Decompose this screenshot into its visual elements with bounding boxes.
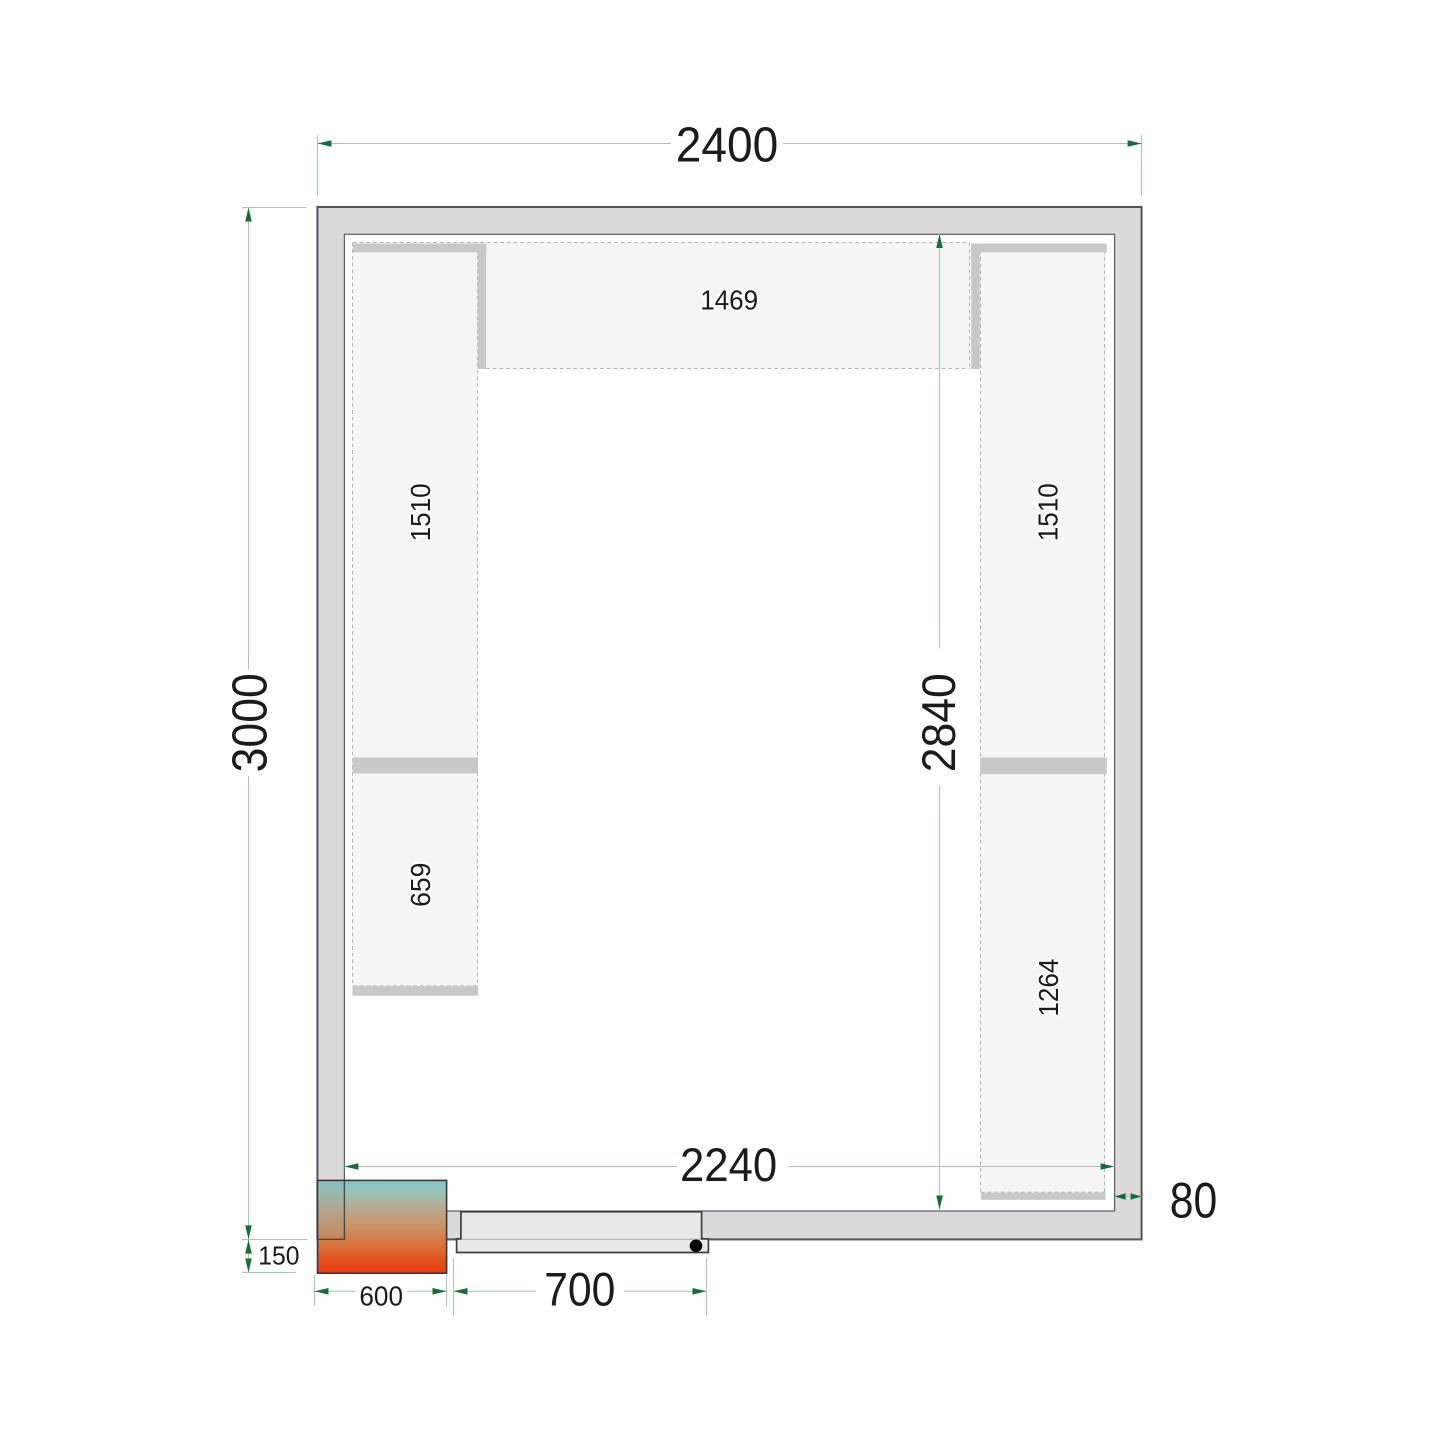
svg-text:1469: 1469 [700, 284, 758, 315]
svg-text:1510: 1510 [1033, 483, 1064, 541]
svg-text:80: 80 [1170, 1173, 1218, 1229]
svg-text:2840: 2840 [913, 673, 966, 772]
svg-text:150: 150 [258, 1242, 299, 1270]
svg-text:2400: 2400 [676, 119, 779, 173]
svg-text:700: 700 [544, 1263, 615, 1316]
svg-text:3000: 3000 [223, 673, 277, 772]
svg-text:659: 659 [405, 863, 436, 907]
svg-text:2240: 2240 [680, 1139, 777, 1192]
svg-text:1264: 1264 [1033, 959, 1064, 1017]
svg-text:600: 600 [359, 1280, 403, 1311]
svg-text:1510: 1510 [405, 483, 436, 541]
